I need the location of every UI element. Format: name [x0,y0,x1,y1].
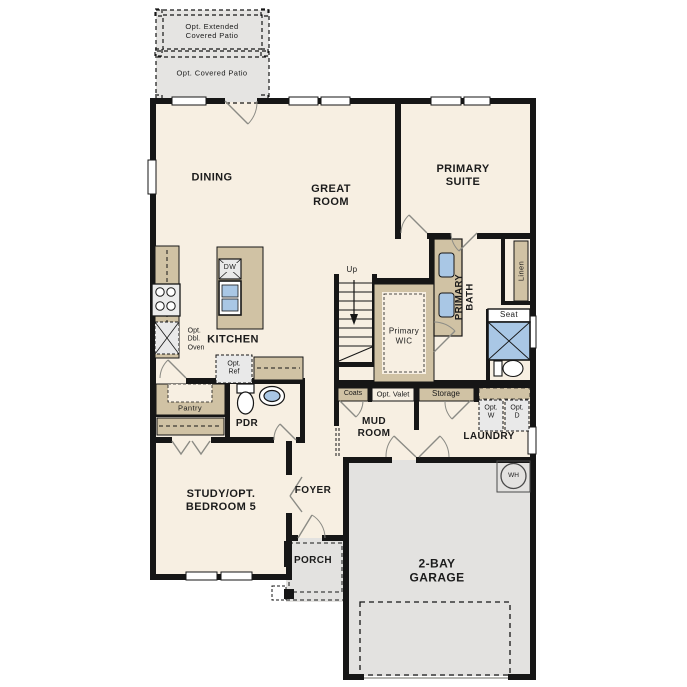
label-porch: PORCH [294,555,332,567]
label-coats: Coats [344,390,362,398]
label-pantry: Pantry [178,404,202,413]
label-dishwasher: DW [224,264,236,272]
label-study: STUDY/OPT. BEDROOM 5 [186,488,256,514]
label-primary-wic: Primary WIC [389,326,419,345]
label-opt-dbl-oven: Opt. Dbl. Oven [188,327,205,352]
label-opt-valet: Opt. Valet [377,390,410,399]
label-linen: Linen [517,261,526,281]
label-seat: Seat [500,310,518,320]
label-pdr: PDR [236,418,258,430]
label-foyer: FOYER [295,485,331,497]
label-primary-bath: PRIMARY BATH [454,274,477,320]
label-laundry: LAUNDRY [463,431,514,443]
label-opt-dryer: Opt. D [510,405,523,422]
bath-toilet-tank [494,361,502,376]
label-primary-suite: PRIMARY SUITE [436,163,489,189]
label-opt-washer: Opt. W [484,405,497,422]
label-opt-covered-patio: Opt. Covered Patio [177,69,248,78]
floor-plan-graphics [0,0,687,687]
label-stairs-up: Up [346,265,357,275]
label-opt-extended-patio: Opt. Extended Covered Patio [185,22,238,40]
wd-shelf [479,388,530,399]
cooktop [152,284,180,316]
label-storage: Storage [432,389,460,399]
label-garage: 2-BAY GARAGE [409,557,464,586]
label-great-room: GREAT ROOM [311,183,351,209]
floor-plan: Opt. Extended Covered Patio Opt. Covered… [0,0,687,687]
label-mud-room: MUD ROOM [358,416,391,440]
label-opt-ref: Opt. Ref [227,361,240,378]
label-dining: DINING [192,171,233,184]
label-kitchen: KITCHEN [207,333,259,346]
label-water-heater: WH [508,472,519,480]
